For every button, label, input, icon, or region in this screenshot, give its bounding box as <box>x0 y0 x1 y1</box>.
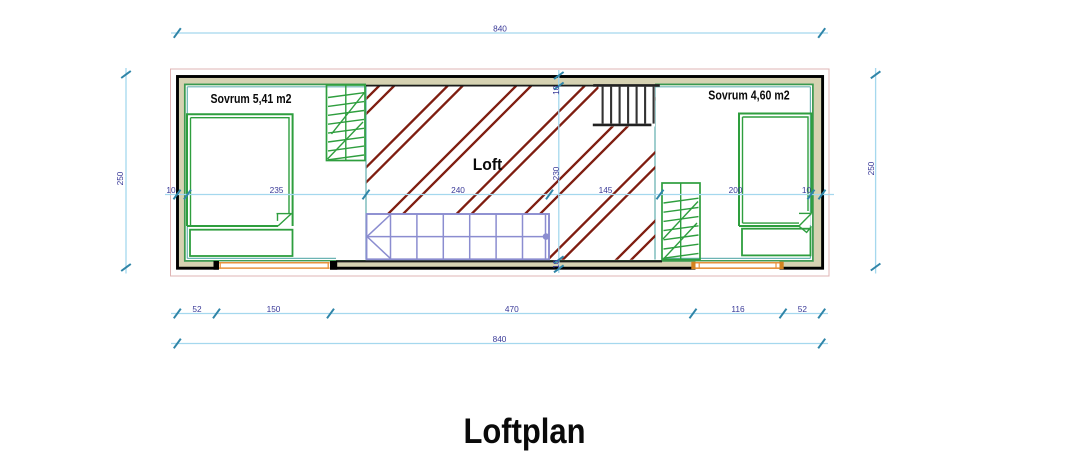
svg-text:250: 250 <box>115 171 125 185</box>
svg-text:250: 250 <box>866 161 876 175</box>
svg-text:116: 116 <box>731 304 745 314</box>
svg-text:10: 10 <box>551 259 561 269</box>
svg-text:200: 200 <box>729 185 743 195</box>
svg-text:52: 52 <box>798 304 808 314</box>
svg-text:150: 150 <box>267 304 281 314</box>
svg-text:Loftplan: Loftplan <box>464 412 586 451</box>
svg-text:10: 10 <box>551 85 561 95</box>
svg-text:Sovrum 4,60 m2: Sovrum 4,60 m2 <box>708 88 789 102</box>
svg-text:470: 470 <box>505 304 519 314</box>
svg-text:235: 235 <box>270 185 284 195</box>
svg-text:Loft: Loft <box>473 156 503 174</box>
svg-text:240: 240 <box>451 185 465 195</box>
svg-text:Sovrum 5,41 m2: Sovrum 5,41 m2 <box>211 92 292 106</box>
svg-text:230: 230 <box>551 166 561 180</box>
svg-text:10: 10 <box>802 185 812 195</box>
svg-text:52: 52 <box>192 304 202 314</box>
svg-text:840: 840 <box>493 24 507 34</box>
svg-text:10: 10 <box>166 185 176 195</box>
svg-text:145: 145 <box>599 185 613 195</box>
svg-text:840: 840 <box>493 334 507 344</box>
